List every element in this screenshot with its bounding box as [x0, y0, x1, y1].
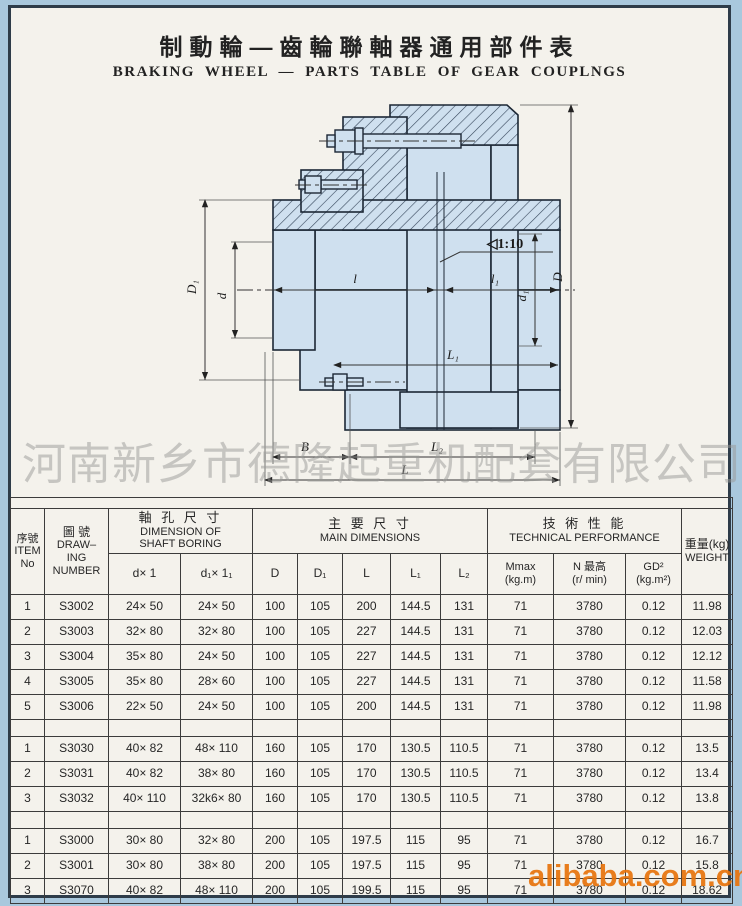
empty-cell	[554, 720, 626, 737]
table-cell: 3	[11, 787, 45, 812]
table-cell: S3003	[45, 620, 109, 645]
table-cell: 30× 80	[109, 854, 181, 879]
table-cell: 71	[488, 737, 554, 762]
empty-cell	[626, 812, 682, 829]
empty-cell	[11, 812, 45, 829]
table-row: 3S303240× 11032k6× 80160105170130.5110.5…	[11, 787, 733, 812]
empty-cell	[45, 812, 109, 829]
table-cell: 3780	[554, 645, 626, 670]
dim-label-L1: L₁	[446, 347, 459, 362]
table-cell: 130.5	[391, 762, 441, 787]
mmax-line2: (kg.m)	[488, 574, 553, 587]
subcol-D: D	[253, 554, 298, 595]
alibaba-watermark: alibaba.com.cn	[528, 858, 742, 894]
table-cell: 1	[11, 595, 45, 620]
column-header-item: 序號 ITEM No	[11, 509, 45, 595]
table-cell: 100	[253, 620, 298, 645]
separator-row	[11, 812, 733, 829]
empty-cell	[488, 812, 554, 829]
table-cell: 71	[488, 645, 554, 670]
table-cell: 28× 60	[181, 670, 253, 695]
empty-cell	[11, 720, 45, 737]
table-cell: 3780	[554, 787, 626, 812]
empty-cell	[343, 720, 391, 737]
table-cell: 105	[298, 737, 343, 762]
table-cell: 24× 50	[181, 645, 253, 670]
table-cell: 131	[441, 695, 488, 720]
drawing-header-en1: DRAW–	[45, 539, 108, 552]
table-cell: 105	[298, 670, 343, 695]
table-cell: 200	[253, 879, 298, 904]
table-cell: 71	[488, 829, 554, 854]
subcol-nmax: N 最高 (r/ min)	[554, 554, 626, 595]
column-header-technical-performance: 技 術 性 能 TECHNICAL PERFORMANCE	[488, 509, 682, 554]
table-cell: 144.5	[391, 695, 441, 720]
table-cell: S3004	[45, 645, 109, 670]
table-cell: 115	[391, 854, 441, 879]
empty-cell	[441, 720, 488, 737]
table-cell: 110.5	[441, 762, 488, 787]
table-cell: 160	[253, 762, 298, 787]
table-cell: 3780	[554, 695, 626, 720]
table-cell: 170	[343, 787, 391, 812]
cap-cell	[11, 498, 733, 509]
table-cell: 48× 110	[181, 879, 253, 904]
taper-label: ◁1:10	[486, 237, 523, 252]
subcol-L2: L₂	[441, 554, 488, 595]
table-cell: 12.12	[682, 645, 733, 670]
empty-cell	[391, 812, 441, 829]
table-cell: 100	[253, 670, 298, 695]
header-sub-row: d× 1 d₁× 1₁ D D₁ L L₁ L₂ Mmax (kg.m) N 最…	[11, 554, 733, 595]
table-cell: 3	[11, 879, 45, 904]
item-header-en2: No	[11, 558, 44, 571]
table-cell: 40× 110	[109, 787, 181, 812]
column-header-drawing-number: 圖 號 DRAW– ING NUMBER	[45, 509, 109, 595]
table-cell: 3780	[554, 670, 626, 695]
table-cell: 197.5	[343, 829, 391, 854]
table-cell: 13.8	[682, 787, 733, 812]
table-cell: 24× 50	[181, 695, 253, 720]
table-cell: 105	[298, 595, 343, 620]
table-cell: 3780	[554, 762, 626, 787]
subcol-L: L	[343, 554, 391, 595]
table-cell: 0.12	[626, 737, 682, 762]
table-cap-row	[11, 498, 733, 509]
subcol-mmax: Mmax (kg.m)	[488, 554, 554, 595]
table-cell: 35× 80	[109, 645, 181, 670]
table-cell: S3031	[45, 762, 109, 787]
table-cell: 144.5	[391, 595, 441, 620]
page-title-english: BRAKING WHEEL — PARTS TABLE OF GEAR COUP…	[11, 64, 728, 81]
table-cell: S3000	[45, 829, 109, 854]
table-cell: S3002	[45, 595, 109, 620]
table-cell: 131	[441, 620, 488, 645]
main-header-en: MAIN DIMENSIONS	[253, 532, 487, 545]
column-header-shaft-boring: 軸 孔 尺 寸 DIMENSION OF SHAFT BORING	[109, 509, 253, 554]
table-cell: 11.58	[682, 670, 733, 695]
table-cell: 12.03	[682, 620, 733, 645]
table-cell: 16.7	[682, 829, 733, 854]
table-cell: 40× 82	[109, 762, 181, 787]
empty-cell	[298, 812, 343, 829]
tech-header-en: TECHNICAL PERFORMANCE	[488, 532, 681, 545]
table-cell: 200	[343, 695, 391, 720]
table-cell: 71	[488, 670, 554, 695]
table-cell: 1	[11, 829, 45, 854]
table-cell: 105	[298, 787, 343, 812]
table-cell: 1	[11, 737, 45, 762]
empty-cell	[554, 812, 626, 829]
table-cell: 115	[391, 829, 441, 854]
table-cell: 131	[441, 595, 488, 620]
empty-cell	[343, 812, 391, 829]
brake-wheel-bottom	[400, 392, 518, 428]
company-watermark: 河南新乡市德隆起重机配套有限公司	[22, 428, 727, 492]
table-cell: 5	[11, 695, 45, 720]
table-cell: S3032	[45, 787, 109, 812]
table-cell: 115	[391, 879, 441, 904]
empty-cell	[253, 812, 298, 829]
table-cell: 71	[488, 595, 554, 620]
dim-label-d: d	[214, 292, 229, 299]
table-cell: 0.12	[626, 829, 682, 854]
tech-header-zh: 技 術 性 能	[488, 517, 681, 532]
table-row: 4S300535× 8028× 60100105227144.513171378…	[11, 670, 733, 695]
table-cell: 2	[11, 854, 45, 879]
table-cell: 40× 82	[109, 737, 181, 762]
table-cell: 40× 82	[109, 879, 181, 904]
table-cell: S3005	[45, 670, 109, 695]
dim-label-D: D	[550, 272, 565, 283]
table-cell: 105	[298, 854, 343, 879]
parts-table: 序號 ITEM No 圖 號 DRAW– ING NUMBER 軸 孔 尺 寸 …	[10, 497, 733, 904]
weight-header-en: WEIGHT	[682, 552, 732, 565]
table-cell: S3006	[45, 695, 109, 720]
empty-cell	[298, 720, 343, 737]
table-cell: 3780	[554, 737, 626, 762]
table-row: 3S300435× 8024× 50100105227144.513171378…	[11, 645, 733, 670]
header-group-row: 序號 ITEM No 圖 號 DRAW– ING NUMBER 軸 孔 尺 寸 …	[11, 509, 733, 554]
nmax-line1: N 最高	[554, 561, 625, 574]
item-header-en1: ITEM	[11, 545, 44, 558]
drawing-header-en2: ING	[45, 552, 108, 565]
table-cell: 199.5	[343, 879, 391, 904]
table-cell: 131	[441, 645, 488, 670]
table-cell: 200	[253, 829, 298, 854]
table-row: 5S300622× 5024× 50100105200144.513171378…	[11, 695, 733, 720]
weight-header-zh: 重量(kg)	[682, 538, 732, 552]
empty-cell	[682, 720, 733, 737]
table-cell: 3780	[554, 829, 626, 854]
table-cell: 105	[298, 829, 343, 854]
empty-cell	[253, 720, 298, 737]
table-cell: 144.5	[391, 620, 441, 645]
subcol-gd2: GD² (kg.m²)	[626, 554, 682, 595]
table-cell: S3030	[45, 737, 109, 762]
table-cell: 95	[441, 879, 488, 904]
table-cell: 11.98	[682, 595, 733, 620]
table-cell: 3780	[554, 595, 626, 620]
table-cell: 105	[298, 695, 343, 720]
table-cell: 71	[488, 787, 554, 812]
table-cell: 38× 80	[181, 762, 253, 787]
nmax-line2: (r/ min)	[554, 574, 625, 587]
column-header-main-dimensions: 主 要 尺 寸 MAIN DIMENSIONS	[253, 509, 488, 554]
table-cell: 48× 110	[181, 737, 253, 762]
table-cell: 35× 80	[109, 670, 181, 695]
item-header-zh: 序號	[11, 533, 44, 546]
table-cell: 110.5	[441, 737, 488, 762]
table-cell: 144.5	[391, 670, 441, 695]
table-cell: 2	[11, 762, 45, 787]
table-cell: 3	[11, 645, 45, 670]
table-cell: 105	[298, 762, 343, 787]
empty-cell	[391, 720, 441, 737]
table-cell: 160	[253, 737, 298, 762]
empty-cell	[682, 812, 733, 829]
subcol-L1: L₁	[391, 554, 441, 595]
table-cell: 131	[441, 670, 488, 695]
table-cell: 32k6× 80	[181, 787, 253, 812]
dim-label-d1-outer: D₁	[184, 280, 199, 295]
empty-cell	[181, 812, 253, 829]
table-row: 1S303040× 8248× 110160105170130.5110.571…	[11, 737, 733, 762]
main-header-zh: 主 要 尺 寸	[253, 517, 487, 532]
table-header: 序號 ITEM No 圖 號 DRAW– ING NUMBER 軸 孔 尺 寸 …	[11, 498, 733, 595]
table-row: 2S303140× 8238× 80160105170130.5110.5713…	[11, 762, 733, 787]
table-cell: 32× 80	[181, 620, 253, 645]
table-cell: 170	[343, 762, 391, 787]
table-cell: 2	[11, 620, 45, 645]
table-cell: 200	[253, 854, 298, 879]
table-row: 2S300332× 8032× 80100105227144.513171378…	[11, 620, 733, 645]
brake-wheel-rim	[491, 145, 518, 428]
empty-cell	[45, 720, 109, 737]
table-cell: 227	[343, 645, 391, 670]
separator-row	[11, 720, 733, 737]
table-cell: 0.12	[626, 670, 682, 695]
table-cell: 0.12	[626, 645, 682, 670]
subcol-d-x-l: d× 1	[109, 554, 181, 595]
table-cell: 0.12	[626, 762, 682, 787]
table-cell: 30× 80	[109, 829, 181, 854]
subcol-D1: D₁	[298, 554, 343, 595]
dim-label-l1: l₁	[491, 271, 499, 286]
table-cell: 71	[488, 762, 554, 787]
empty-cell	[441, 812, 488, 829]
table-cell: 0.12	[626, 595, 682, 620]
table-cell: S3001	[45, 854, 109, 879]
table-cell: 22× 50	[109, 695, 181, 720]
gd2-line2: (kg.m²)	[626, 574, 681, 587]
table-cell: 32× 80	[109, 620, 181, 645]
table-cell: 170	[343, 737, 391, 762]
dim-label-d1-right: d₁	[514, 290, 529, 301]
drawing-header-zh: 圖 號	[45, 526, 108, 540]
table-cell: 110.5	[441, 787, 488, 812]
table-cell: 130.5	[391, 737, 441, 762]
table-cell: 130.5	[391, 787, 441, 812]
dim-label-l: l	[353, 271, 357, 286]
table-cell: 32× 80	[181, 829, 253, 854]
table-cell: 0.12	[626, 695, 682, 720]
table-cell: 24× 50	[181, 595, 253, 620]
table-cell: 95	[441, 854, 488, 879]
table-cell: 144.5	[391, 645, 441, 670]
scanned-document: { "title": { "zh": "制動輪—齒輪聯軸器通用部件表", "en…	[0, 0, 742, 906]
table-cell: 100	[253, 595, 298, 620]
table-cell: 71	[488, 695, 554, 720]
table-cell: 38× 80	[181, 854, 253, 879]
table-cell: 197.5	[343, 854, 391, 879]
boring-header-en1: DIMENSION OF	[109, 526, 252, 539]
drawing-header-en3: NUMBER	[45, 565, 108, 578]
table-cell: 105	[298, 879, 343, 904]
empty-cell	[488, 720, 554, 737]
boring-header-en2: SHAFT BORING	[109, 538, 252, 551]
table-cell: 160	[253, 787, 298, 812]
table-cell: 11.98	[682, 695, 733, 720]
empty-cell	[109, 812, 181, 829]
table-cell: 0.12	[626, 620, 682, 645]
table-cell: 227	[343, 620, 391, 645]
table-cell: 13.4	[682, 762, 733, 787]
table-cell: 71	[488, 620, 554, 645]
empty-cell	[626, 720, 682, 737]
table-cell: 105	[298, 620, 343, 645]
table-cell: 100	[253, 695, 298, 720]
mmax-line1: Mmax	[488, 561, 553, 574]
empty-cell	[181, 720, 253, 737]
table-cell: 13.5	[682, 737, 733, 762]
table-cell: S3070	[45, 879, 109, 904]
table-cell: 105	[298, 645, 343, 670]
table-cell: 227	[343, 670, 391, 695]
page-title-chinese: 制動輪—齒輪聯軸器通用部件表	[11, 28, 728, 62]
table-cell: 200	[343, 595, 391, 620]
empty-cell	[109, 720, 181, 737]
table-cell: 4	[11, 670, 45, 695]
boring-header-zh: 軸 孔 尺 寸	[109, 511, 252, 526]
table-cell: 24× 50	[109, 595, 181, 620]
table-cell: 95	[441, 829, 488, 854]
subcol-d1-x-l1: d₁× 1₁	[181, 554, 253, 595]
column-header-weight: 重量(kg) WEIGHT	[682, 509, 733, 595]
table-cell: 3780	[554, 620, 626, 645]
table-cell: 100	[253, 645, 298, 670]
table-row: 1S300030× 8032× 80200105197.511595713780…	[11, 829, 733, 854]
brake-wheel-web	[407, 145, 491, 428]
gd2-line1: GD²	[626, 561, 681, 574]
table-cell: 0.12	[626, 787, 682, 812]
table-row: 1S300224× 5024× 50100105200144.513171378…	[11, 595, 733, 620]
